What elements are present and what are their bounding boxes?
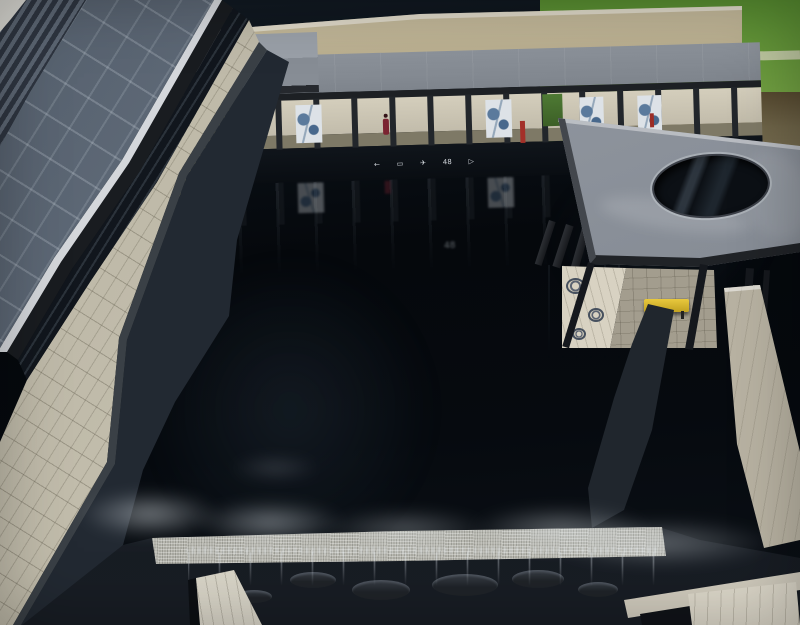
photo-vignette bbox=[0, 0, 800, 625]
photo-courtyard-aerial: ←▭✈48▷ 48 bbox=[0, 0, 800, 625]
